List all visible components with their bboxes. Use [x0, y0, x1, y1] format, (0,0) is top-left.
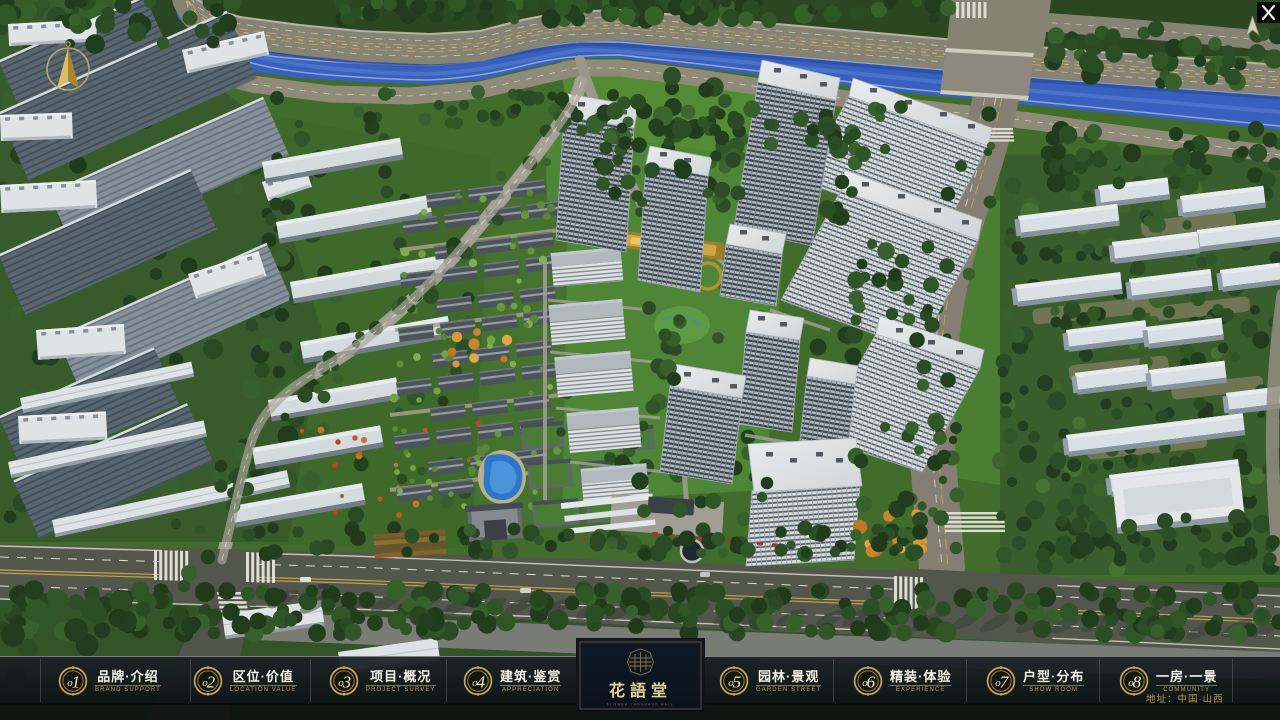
- svg-text:花語堂: 花語堂: [609, 681, 672, 700]
- svg-text:FLOWER LANGUAGE HALL: FLOWER LANGUAGE HALL: [607, 703, 674, 707]
- svg-text:6: 6: [867, 673, 876, 692]
- svg-text:8: 8: [1133, 673, 1142, 692]
- svg-text:5: 5: [733, 673, 742, 692]
- svg-text:7: 7: [1000, 673, 1010, 692]
- svg-text:4: 4: [477, 673, 486, 692]
- svg-text:3: 3: [342, 673, 352, 692]
- svg-text:2: 2: [207, 673, 216, 692]
- svg-text:1: 1: [72, 673, 81, 692]
